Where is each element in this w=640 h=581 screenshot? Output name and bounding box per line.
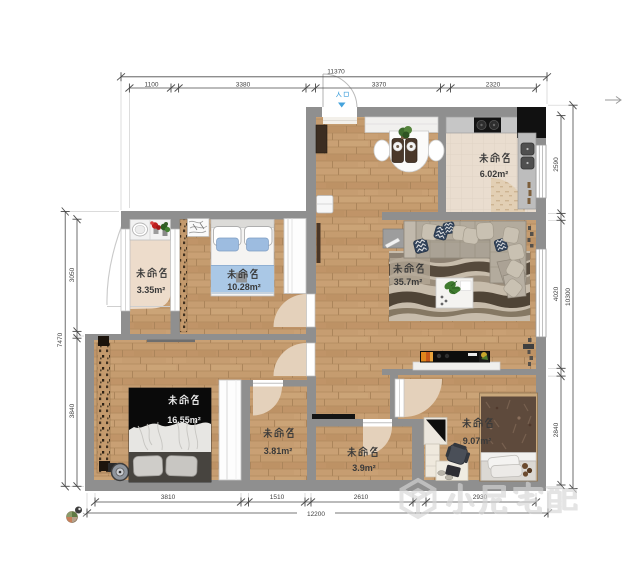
svg-text:3.81m²: 3.81m² <box>264 446 293 456</box>
svg-text:7470: 7470 <box>57 332 64 347</box>
svg-text:2840: 2840 <box>553 422 560 437</box>
svg-text:6.02m²: 6.02m² <box>480 169 509 179</box>
svg-text:3380: 3380 <box>236 81 251 88</box>
svg-text:3.9m²: 3.9m² <box>352 463 376 473</box>
svg-text:2590: 2590 <box>553 157 560 172</box>
svg-text:10.28m²: 10.28m² <box>227 282 261 292</box>
svg-text:16.55m²: 16.55m² <box>167 415 201 425</box>
svg-text:1100: 1100 <box>145 81 159 88</box>
svg-text:3840: 3840 <box>69 403 76 418</box>
svg-text:3370: 3370 <box>372 81 387 88</box>
svg-text:1510: 1510 <box>270 494 285 501</box>
svg-text:11370: 11370 <box>327 69 345 76</box>
svg-text:9.07m²: 9.07m² <box>463 436 492 446</box>
svg-text:4020: 4020 <box>553 286 560 301</box>
svg-text:2320: 2320 <box>486 81 501 88</box>
svg-text:3.35m²: 3.35m² <box>137 285 166 295</box>
svg-text:35.7m²: 35.7m² <box>394 277 423 287</box>
svg-text:2610: 2610 <box>354 494 369 501</box>
svg-text:12200: 12200 <box>307 511 325 518</box>
svg-text:3050: 3050 <box>69 267 76 282</box>
svg-text:3810: 3810 <box>161 494 176 501</box>
svg-text:10300: 10300 <box>565 288 572 306</box>
